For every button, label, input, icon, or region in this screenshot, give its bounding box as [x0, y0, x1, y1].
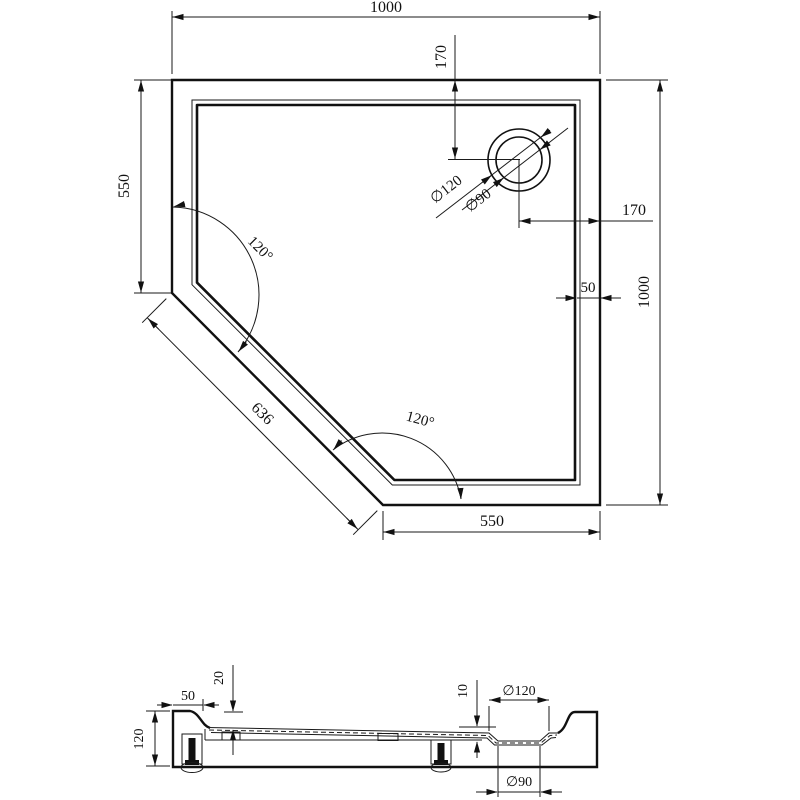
dim-chamfer-label: 636: [248, 399, 277, 428]
dim-overall-width: 1000: [172, 0, 600, 74]
dim-overall-width-label: 1000: [370, 0, 402, 16]
dim-recess-inner-diameter-label: ∅90: [506, 775, 532, 790]
dim-drain-outer-diameter: ∅120: [428, 130, 550, 218]
dim-left-edge: 550: [116, 80, 171, 293]
dim-rim-width-label: 50: [181, 689, 195, 704]
dim-drain-from-top: 170: [433, 35, 455, 159]
support-block-right: [378, 734, 398, 741]
dim-drain-from-right: 170: [519, 202, 653, 221]
dim-total-height-label: 120: [132, 729, 147, 750]
drawing-svg: 1000 1000 550 170: [0, 0, 800, 800]
dim-rim-width: 50: [157, 689, 219, 711]
dim-wall-thickness: 50: [556, 280, 621, 298]
dim-recess-depth: 10: [456, 680, 496, 758]
angle-upper-label: 120°: [244, 233, 275, 264]
dim-overall-height: 1000: [606, 80, 668, 505]
dim-bottom-edge-label: 550: [480, 513, 504, 530]
top-view: 1000 1000 550 170: [116, 0, 668, 540]
dim-left-edge-label: 550: [116, 174, 133, 198]
section-view: 50 20 120 10: [132, 665, 597, 797]
dim-total-height: 120: [132, 711, 170, 766]
dim-rim-depth: 20: [212, 665, 243, 755]
dim-drain-outer-diameter-label: ∅120: [428, 173, 466, 208]
dim-recess-outer-diameter-label: ∅120: [502, 684, 535, 699]
dim-overall-height-label: 1000: [636, 276, 653, 308]
dim-bottom-edge: 550: [383, 511, 600, 540]
dim-wall-thickness-label: 50: [581, 280, 596, 296]
dim-recess-outer-diameter: ∅120: [489, 684, 549, 731]
dim-drain-inner-diameter-label: ∅90: [463, 186, 495, 216]
dim-drain-from-top-label: 170: [433, 45, 450, 69]
tray-rim-inner-line: [197, 105, 575, 480]
section-outline: [173, 711, 597, 767]
angle-upper: 120°: [173, 204, 276, 352]
angle-lower-label: 120°: [404, 409, 436, 432]
dim-drain-from-right-label: 170: [622, 202, 646, 219]
dim-recess-inner-diameter: ∅90: [476, 746, 562, 797]
dim-drain-inner-diameter: ∅90: [462, 128, 568, 216]
dim-chamfer: 636: [142, 299, 377, 535]
tray-rim-outer-line: [192, 100, 580, 485]
dim-rim-depth-label: 20: [212, 671, 227, 685]
floor-top-line: [207, 728, 559, 742]
dim-recess-depth-label: 10: [456, 684, 471, 698]
shower-tray-technical-drawing: 1000 1000 550 170: [0, 0, 800, 800]
